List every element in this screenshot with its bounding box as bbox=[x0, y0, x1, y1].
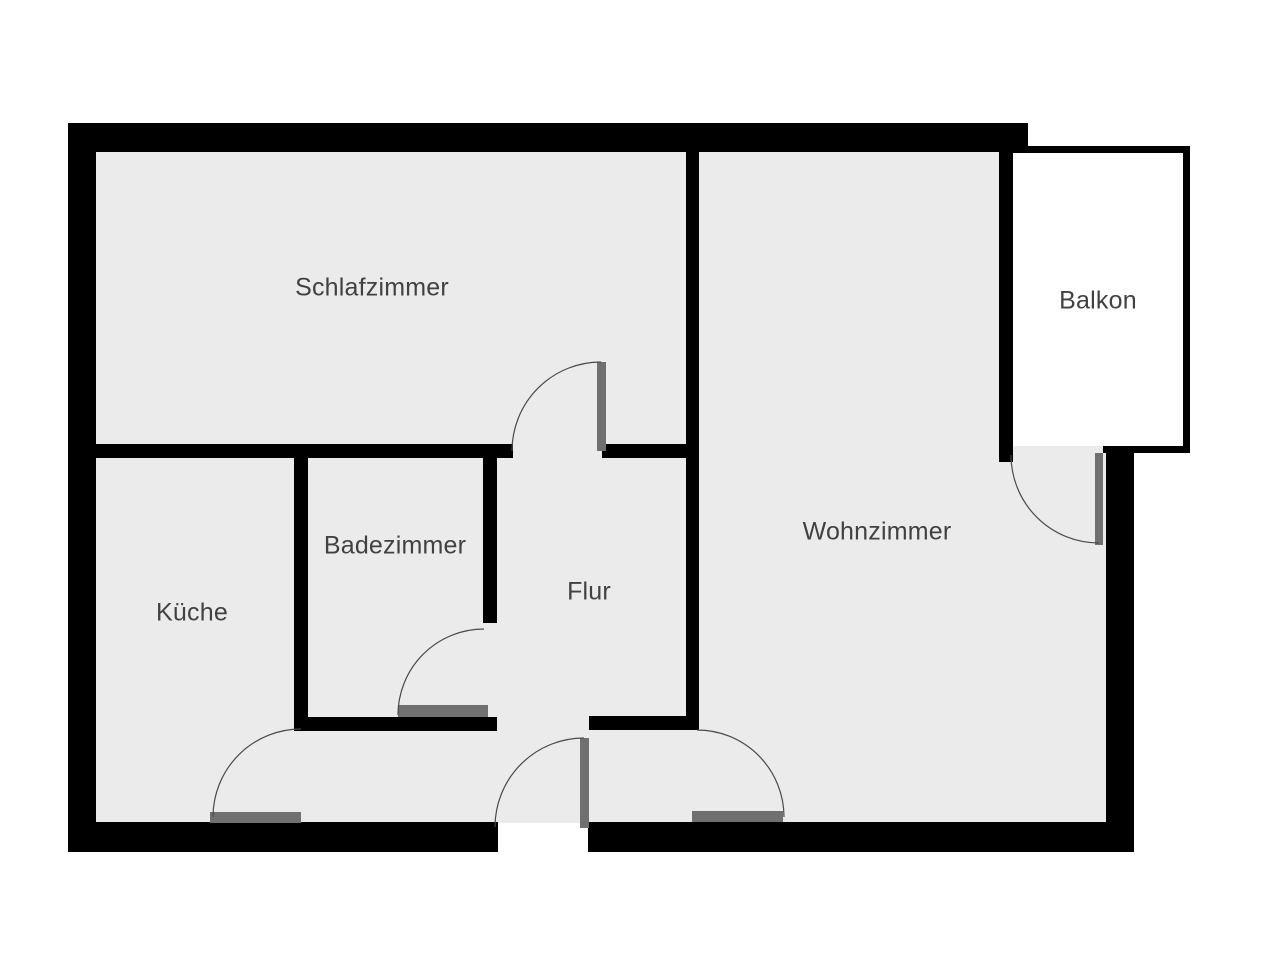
room-label-badezimmer: Badezimmer bbox=[324, 532, 466, 561]
room-label-flur: Flur bbox=[567, 578, 611, 607]
wall-balkon-right bbox=[1183, 146, 1190, 453]
wall-badezimmer-right bbox=[483, 458, 497, 623]
wall-balkon-bottom bbox=[1103, 446, 1190, 453]
wall-badezimmer-left bbox=[294, 458, 308, 731]
floor-main-left bbox=[96, 152, 999, 823]
room-label-schlafzimmer: Schlafzimmer bbox=[295, 274, 449, 303]
wall-badezimmer-bottom bbox=[294, 717, 497, 731]
wall-balkon-top bbox=[1013, 146, 1190, 153]
floor-wohnzimmer-right bbox=[999, 446, 1106, 823]
wall-outer-bottom-left bbox=[68, 822, 498, 852]
door-leaf-schlafzimmer bbox=[597, 362, 606, 451]
door-leaf-wohnzimmer bbox=[692, 811, 783, 822]
wall-outer-bottom-right bbox=[588, 822, 1134, 852]
floorplan: SchlafzimmerKücheBadezimmerFlurWohnzimme… bbox=[0, 0, 1280, 960]
door-leaf-kueche bbox=[210, 812, 301, 823]
room-label-kueche: Küche bbox=[156, 599, 228, 628]
wall-outer-left bbox=[68, 123, 96, 852]
wall-flur-bottom-stub bbox=[589, 716, 699, 730]
wall-wohnzimmer-balkon bbox=[999, 152, 1013, 462]
door-leaf-badezimmer bbox=[398, 705, 488, 717]
wall-outer-top bbox=[68, 123, 1028, 152]
wall-schlafzimmer-bottom-left bbox=[96, 444, 513, 458]
wall-schlafzimmer-bottom-right bbox=[602, 444, 686, 458]
room-label-wohnzimmer: Wohnzimmer bbox=[803, 518, 952, 547]
door-leaf-entrance bbox=[580, 738, 589, 828]
door-leaf-balkon bbox=[1095, 453, 1103, 545]
room-label-balkon: Balkon bbox=[1059, 287, 1137, 316]
wall-outer-right-lower bbox=[1106, 446, 1134, 852]
wall-wohnzimmer-left bbox=[686, 152, 699, 730]
